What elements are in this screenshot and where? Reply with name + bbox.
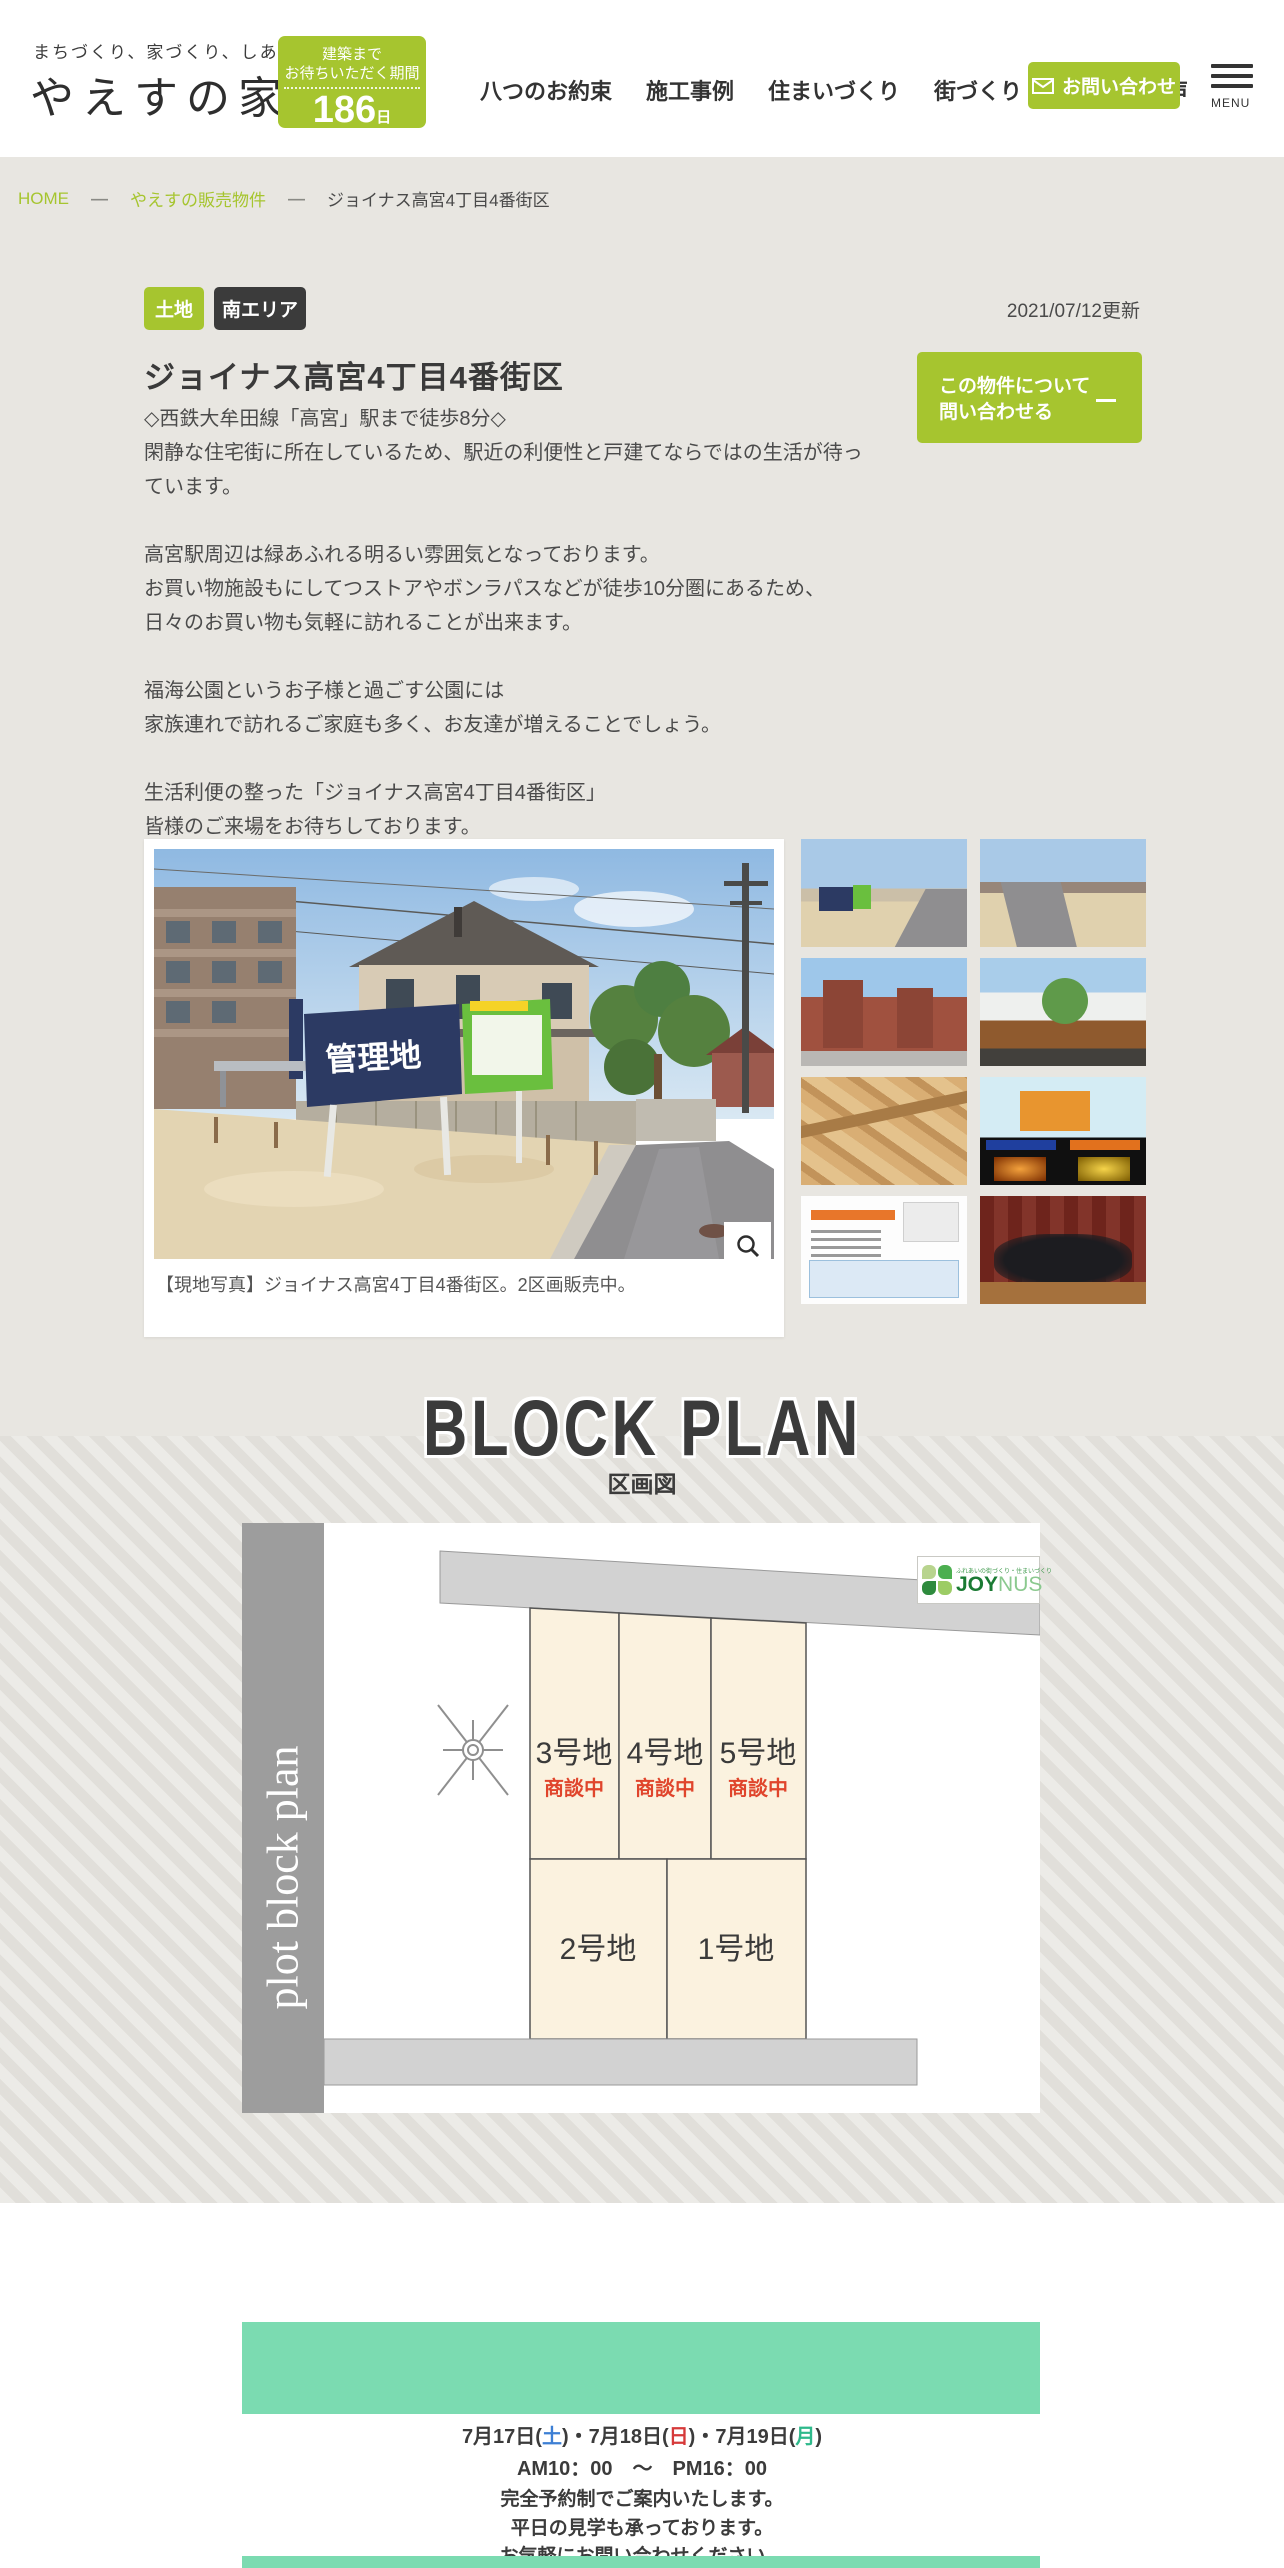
lot-4-status: 商談中 [635,1776,695,1800]
event-time: AM10：00 〜 PM16：00 [0,2452,1284,2481]
event-note-2: 平日の見学も承っております。 [0,2513,1284,2540]
block-plan-diagram: 3号地 商談中 4号地 商談中 5号地 商談中 2号地 1号地 [324,1523,1040,2113]
breadcrumb-separator: — [91,189,108,209]
breadcrumb-parent[interactable]: やえすの販売物件 [130,186,266,211]
event-note-1: 完全予約制でご案内いたします。 [0,2484,1284,2511]
breadcrumb-separator: — [288,189,305,209]
tag-land: 土地 [144,287,204,330]
breadcrumb-home[interactable]: HOME [18,189,69,209]
joynus-name-bold: JOY [956,1573,998,1596]
site-photo-illustration: 管理地 [154,849,774,1259]
thumbnail-modern-houses[interactable] [980,958,1146,1066]
block-plan-card: plot block plan 3号地 商談中 4号地 商談中 [242,1523,1040,2113]
utility-pole-symbol [438,1705,508,1795]
nav-item-promises[interactable]: 八つのお約束 [480,74,612,106]
photo-caption: 【現地写真】ジョイナス高宮4丁目4番街区。2区画販売中。 [156,1271,636,1297]
countdown-line1: 建築まで [278,45,426,64]
contact-button[interactable]: お問い合わせ [1028,62,1180,109]
event-banner [242,2322,1040,2414]
inquiry-button-line2: 問い合わせる [939,400,1090,426]
breadcrumb-current: ジョイナス高宮4丁目4番街区 [327,186,550,211]
thumbnail-wood-framing[interactable] [801,1077,967,1185]
zoom-photo-button[interactable] [724,1222,771,1269]
lot-4-label: 4号地 [627,1737,704,1770]
saturday-label: 土 [542,2426,562,2448]
event-dates: 7月17日(土)・7月18日(日)・7月19日(月) [0,2420,1284,2449]
page: まちづくり、家づくり、しあわせづくり やえすの家 建築まで お待ちいただく期間 … [0,0,1284,2568]
contact-button-label: お問い合わせ [1062,72,1176,99]
thumbnail-insulation-diagram[interactable] [980,1077,1146,1185]
sunday-label: 日 [669,2426,689,2448]
main-photo-card: 管理地 【現地写真】ジョイナス高宮4丁目4番街区。2区画販売中。 [144,839,784,1337]
main-photo[interactable]: 管理地 [154,849,774,1259]
countdown-days: 186 [313,89,376,131]
joynus-logo: ふれあいの街づくり・住まいづくり JOYNUS [917,1556,1040,1604]
joynus-name-light: NUS [998,1573,1042,1596]
lot-5-status: 商談中 [728,1776,788,1800]
menu-label: MENU [1211,96,1250,110]
lot-3-status: 商談中 [544,1776,604,1800]
joynus-clover-icon [922,1565,952,1595]
inquiry-button-line1: この物件について [939,374,1090,400]
nav-item-housing[interactable]: 住まいづくり [768,74,900,106]
underscore-icon [1096,399,1116,402]
tag-south-area: 南エリア [214,287,306,330]
main-nav: 八つのお約束 施工事例 住まいづくり 街づくり お客さまの声 [480,74,1080,106]
updated-date: 2021/07/12更新 [1007,296,1140,323]
block-plan-heading: BLOCK PLAN [0,1388,1284,1468]
thumbnail-site-sign[interactable] [801,839,967,947]
countdown-badge: 建築まで お待ちいただく期間 186日 [278,36,426,128]
countdown-unit: 日 [376,109,391,126]
thumbnail-site-street[interactable] [980,839,1146,947]
thumbnail-ecojozu-diagram[interactable] [801,1196,967,1304]
property-description: ◇西鉄大牟田線「高宮」駅まで徒歩8分◇ 閑静な住宅街に所在しているため、駅近の利… [144,402,864,844]
countdown-line2: お待ちいただく期間 [284,64,420,89]
property-title: ジョイナス高宮4丁目4番街区 [144,352,564,397]
header: まちづくり、家づくり、しあわせづくり やえすの家 建築まで お待ちいただく期間 … [0,0,1284,157]
lot-3-label: 3号地 [536,1737,613,1770]
monday-label: 月 [795,2426,815,2448]
lot-2-label: 2号地 [560,1933,637,1966]
magnifier-icon [735,1233,761,1259]
nav-item-works[interactable]: 施工事例 [646,74,734,106]
lot-5-label: 5号地 [720,1737,797,1770]
inquiry-button[interactable]: この物件について 問い合わせる [917,352,1142,443]
brand-logo[interactable]: やえすの家 [30,62,290,126]
thumbnail-brick-houses[interactable] [801,958,967,1066]
managed-land-sign-text: 管理地 [324,1037,422,1078]
nav-item-town[interactable]: 街づくり [934,74,1022,106]
plot-plan-watermark: plot block plan [258,1746,309,2010]
lot-1-label: 1号地 [698,1933,775,1966]
breadcrumb: HOME — やえすの販売物件 — ジョイナス高宮4丁目4番街区 [18,186,550,211]
thumbnail-staff-photo[interactable] [980,1196,1146,1304]
footer-green-band [242,2556,1040,2568]
mail-icon [1032,78,1054,94]
plot-plan-sidebar: plot block plan [242,1523,324,2113]
hamburger-icon [1211,64,1253,68]
block-plan-subheading: 区画図 [0,1465,1284,1499]
photo-thumbnails [801,839,1146,1305]
menu-button[interactable]: MENU [1211,64,1253,100]
